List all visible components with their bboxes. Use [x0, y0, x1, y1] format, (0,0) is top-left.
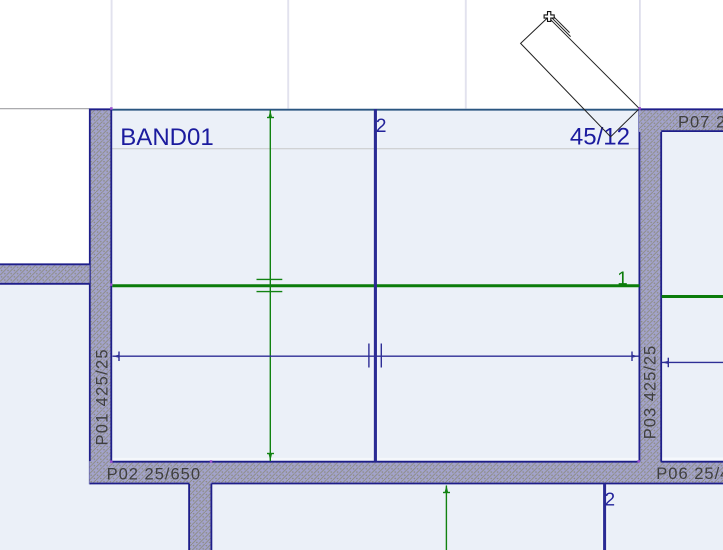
svg-text:2: 2: [376, 116, 387, 137]
svg-text:BAND01: BAND01: [120, 124, 213, 151]
svg-text:P03 425/25: P03 425/25: [642, 345, 660, 439]
svg-text:P02 25/650: P02 25/650: [107, 466, 201, 484]
svg-text:P01 425/25: P01 425/25: [93, 348, 111, 445]
svg-text:1: 1: [617, 267, 627, 288]
svg-text:P07 25/45: P07 25/45: [678, 113, 723, 131]
svg-text:2: 2: [605, 488, 615, 509]
svg-text:P06 25/45: P06 25/45: [656, 465, 723, 483]
svg-text:45/12: 45/12: [570, 124, 630, 151]
